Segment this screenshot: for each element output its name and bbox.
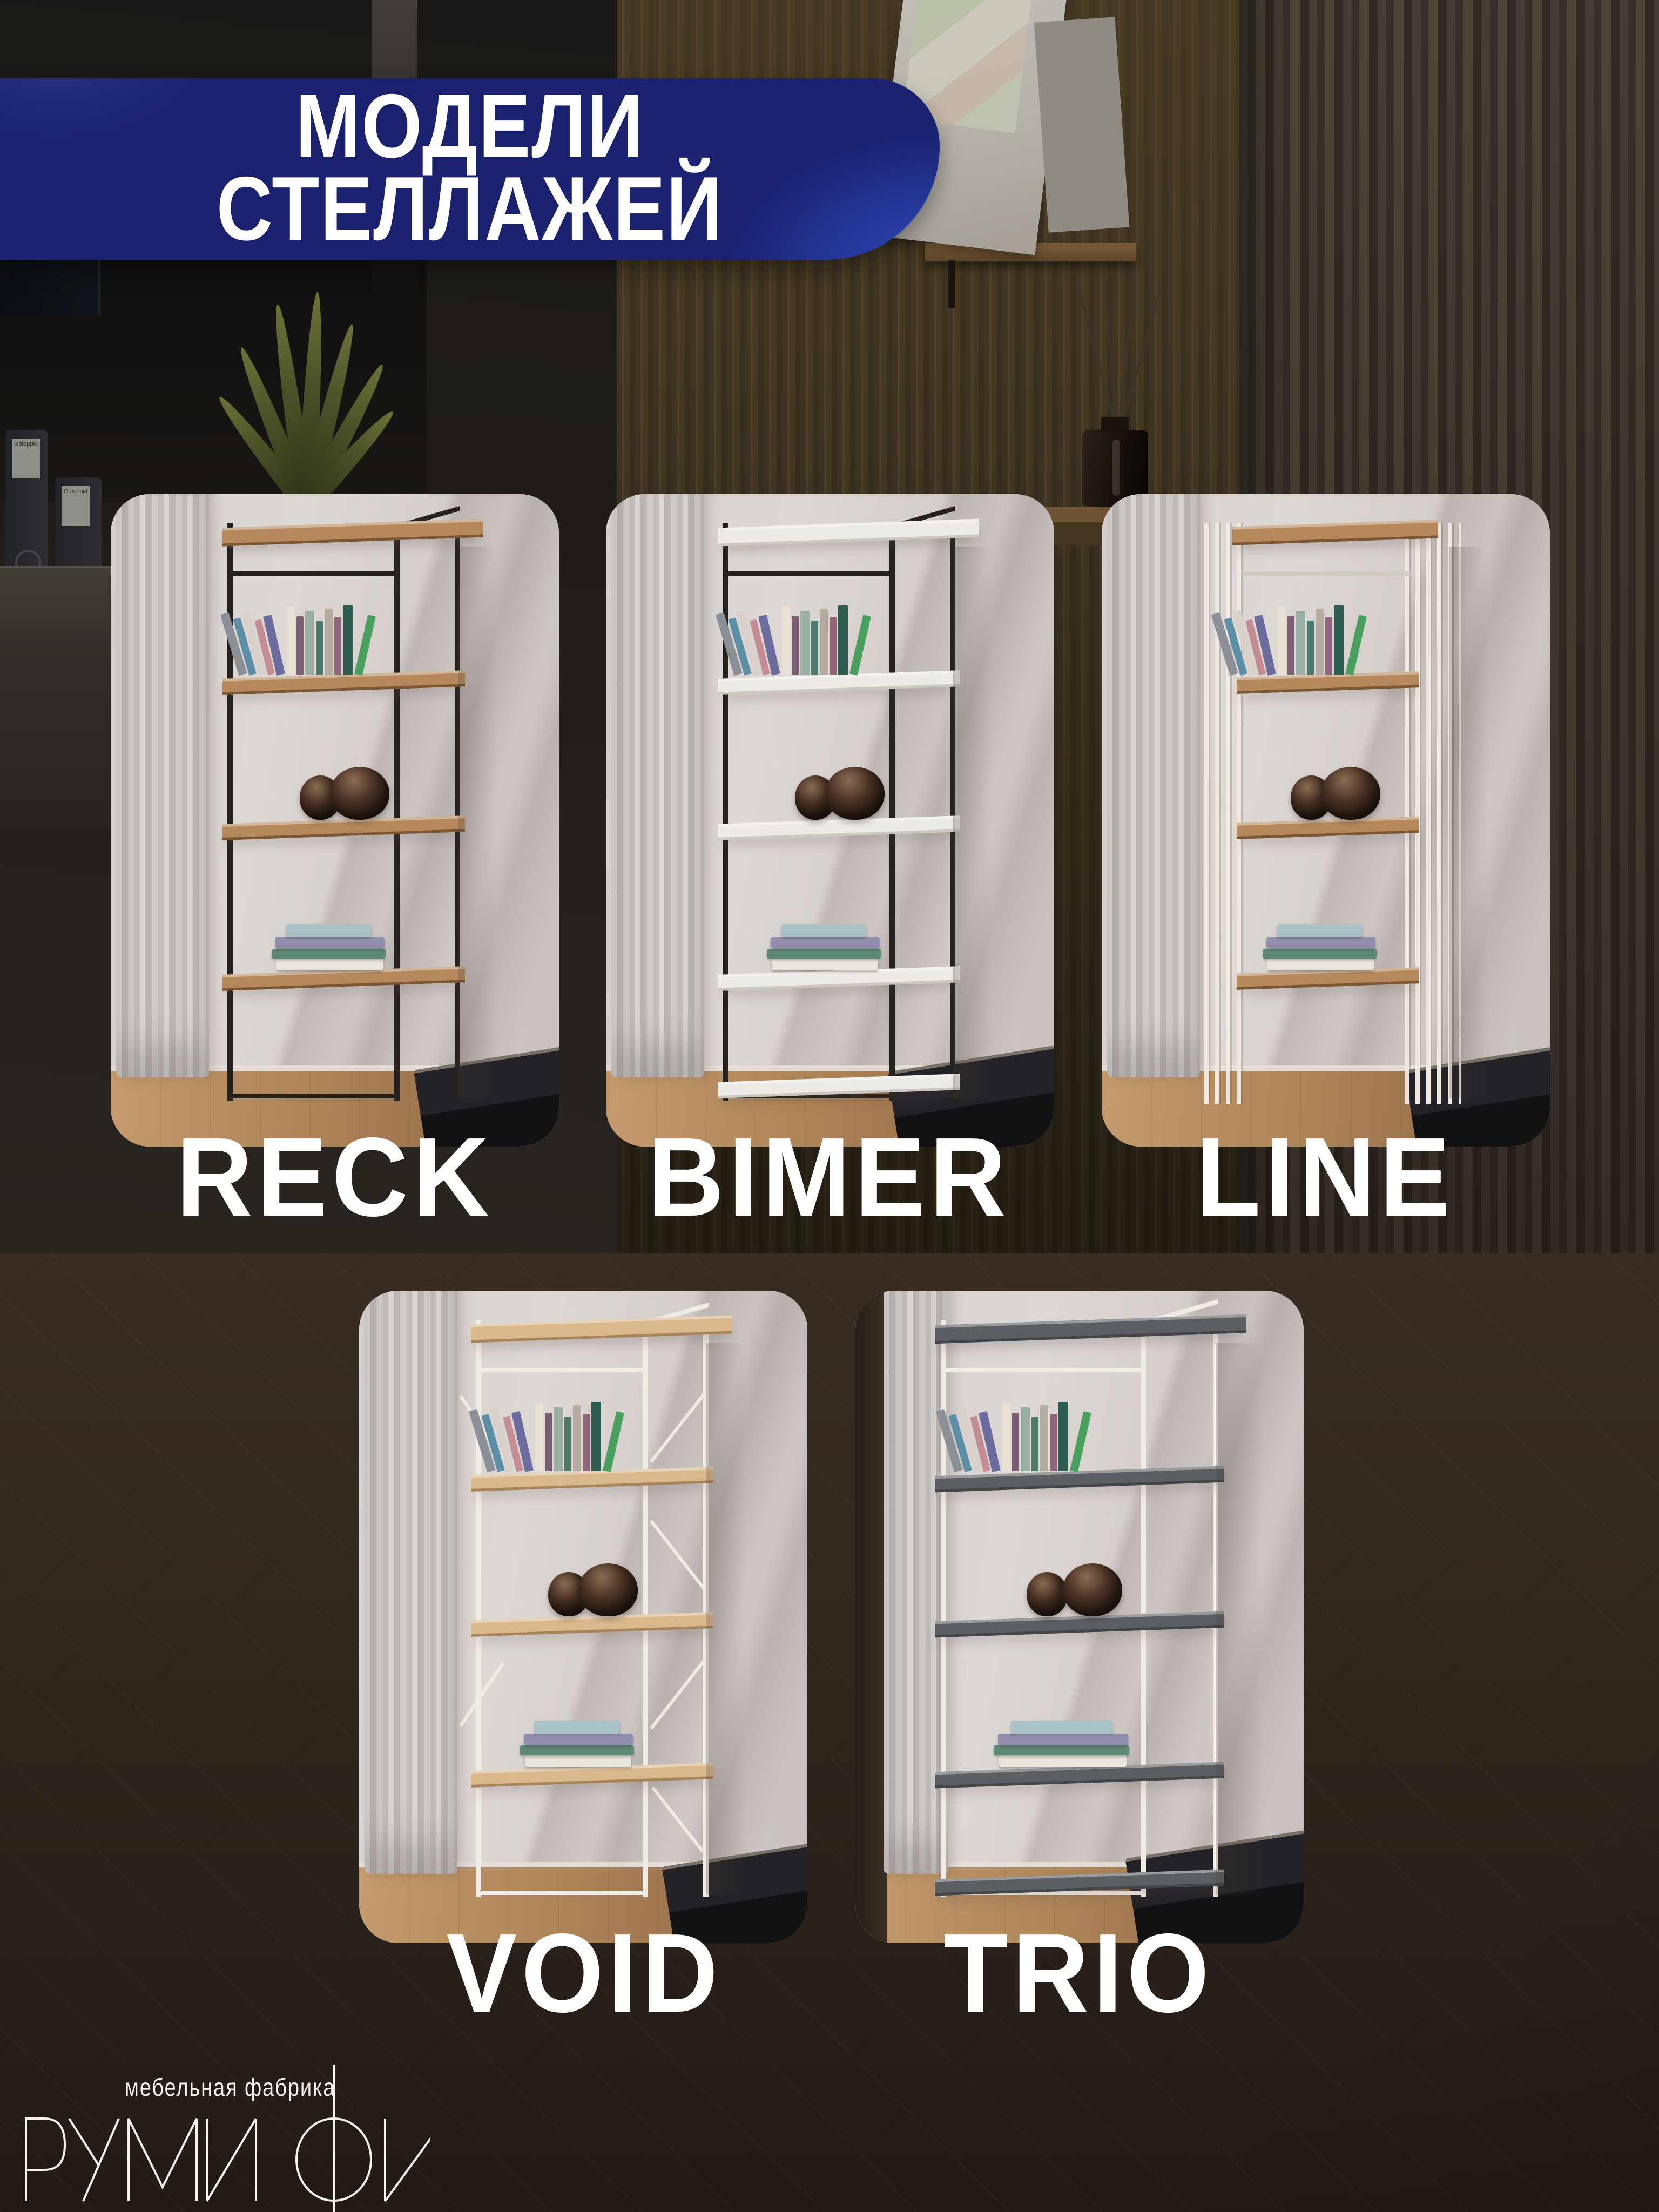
decor-book — [1325, 617, 1332, 675]
product-photo — [359, 1291, 807, 1943]
decor-book-stack — [998, 1734, 1128, 1745]
product-label-line: LINE — [1028, 1121, 1622, 1233]
decor-book — [325, 609, 333, 675]
decor-book — [1278, 606, 1286, 675]
decor-book-stack — [286, 924, 371, 937]
top-rail — [476, 1368, 648, 1372]
decor-book — [591, 1402, 601, 1471]
decor-book-stack — [1011, 1721, 1112, 1734]
decor-book — [1334, 605, 1344, 675]
decor-book — [1040, 1405, 1048, 1471]
brand-logo: мебельная фабрика РУМИФИ — [0, 2062, 497, 2212]
decor-book-stack — [535, 1721, 619, 1734]
decor-book-stack — [524, 1734, 633, 1745]
decor-book-stack — [525, 1755, 631, 1767]
decor-book-stack — [767, 949, 881, 959]
x-brace — [650, 1520, 706, 1590]
banner-title-line2: СТЕЛЛАЖЕЙ — [66, 167, 874, 250]
decor-vase-big — [1063, 1563, 1122, 1616]
decor-book-stack — [999, 1755, 1126, 1767]
decor-book — [838, 605, 848, 675]
brand-wordmark — [19, 2062, 430, 2212]
decor-vase-big — [330, 767, 389, 820]
shelf-board — [1237, 817, 1419, 839]
decor-vase-big — [578, 1563, 638, 1616]
shelving-unit — [1218, 523, 1452, 1104]
decor-book — [305, 611, 314, 675]
decor-book — [792, 616, 799, 675]
decor-book-stack — [275, 937, 385, 949]
decor-book-stack — [276, 959, 383, 970]
decor-book — [1012, 1413, 1019, 1471]
decor-books-row — [487, 1402, 659, 1471]
decor-book — [1002, 1403, 1010, 1471]
shelving-unit — [941, 1320, 1219, 1900]
promo-image: Galoppid Galoppid МОДЕЛИ СТЕЛЛАЖЕЙ — [0, 0, 1659, 2212]
decor-book-stack — [269, 923, 390, 970]
decor-book — [1021, 1407, 1030, 1471]
decor-book — [1287, 616, 1294, 675]
card-curtain — [365, 1291, 457, 1874]
shelving-unit — [227, 523, 461, 1104]
top-board — [718, 519, 979, 547]
product-label-trio: TRIO — [781, 1917, 1375, 2029]
letter-i — [207, 2119, 256, 2201]
decor-book-stack — [1263, 949, 1377, 959]
decor-book-stack — [990, 1719, 1135, 1767]
top-rail — [723, 571, 895, 576]
decor-book — [287, 606, 295, 675]
decor-book — [811, 621, 818, 675]
shelving-unit — [476, 1320, 709, 1900]
letter-u — [69, 2119, 119, 2201]
decor-books-row — [239, 605, 411, 675]
decor-book — [1031, 1417, 1038, 1471]
product-card-bimer — [606, 494, 1054, 1147]
decor-book — [1050, 1414, 1057, 1471]
product-card-line — [1102, 494, 1550, 1147]
decor-book-stack — [1277, 924, 1362, 937]
decor-book — [1307, 621, 1314, 675]
card-curtain — [116, 494, 209, 1077]
decor-vase-small — [1027, 1572, 1068, 1616]
decor-book — [1346, 615, 1367, 676]
decor-books-row — [734, 605, 906, 675]
decor-book-stack — [771, 937, 880, 949]
letter-r — [26, 2119, 65, 2201]
shelf-board — [1237, 671, 1419, 694]
decor-book — [782, 606, 790, 675]
bottom-rail — [476, 1891, 648, 1895]
letter-i — [385, 2119, 430, 2201]
shelf-board — [1237, 967, 1419, 990]
decor-book — [1316, 609, 1324, 675]
slat-side-right — [1405, 523, 1461, 1104]
decor-book — [829, 617, 837, 675]
decor-book — [535, 1403, 543, 1471]
decor-book — [583, 1414, 590, 1471]
card-curtain — [1107, 494, 1200, 1077]
decor-book — [800, 611, 810, 675]
product-card-trio — [855, 1291, 1304, 1943]
decor-vase-big — [1321, 767, 1380, 820]
decor-books-row — [1230, 605, 1402, 675]
decor-book-stack — [764, 923, 885, 970]
decor-book-stack — [1266, 937, 1375, 949]
decor-book-stack — [272, 949, 386, 959]
decor-book-stack — [781, 924, 866, 937]
decor-book — [334, 617, 341, 675]
shelving-unit — [723, 523, 956, 1104]
product-card-reck — [111, 494, 559, 1147]
decor-book — [850, 615, 872, 676]
banner-title-line1: МОДЕЛИ — [66, 78, 874, 167]
top-rail — [227, 571, 400, 576]
decor-book — [820, 609, 828, 675]
top-board — [471, 1316, 732, 1343]
top-board — [222, 519, 483, 547]
decor-books-row — [954, 1402, 1160, 1471]
shelf-board — [471, 1612, 713, 1637]
card-curtain — [611, 494, 704, 1077]
decor-book-stack — [772, 959, 878, 970]
x-brace — [650, 1659, 706, 1730]
upright-left — [227, 523, 233, 1101]
upright-left — [941, 1320, 946, 1897]
decor-book — [1070, 1411, 1092, 1472]
x-brace — [651, 1786, 704, 1852]
decor-book — [545, 1413, 552, 1471]
decor-book — [564, 1417, 571, 1471]
upright-left — [723, 523, 728, 1101]
shelf-board — [718, 815, 960, 840]
shelf-board — [935, 1611, 1224, 1637]
decor-book-stack — [994, 1745, 1130, 1755]
top-rail — [941, 1368, 1147, 1372]
decor-book-stack — [520, 1745, 634, 1755]
decor-book — [1058, 1402, 1068, 1471]
decor-book — [1296, 611, 1305, 675]
decor-book — [554, 1407, 563, 1471]
decor-book — [573, 1405, 581, 1471]
decor-book — [603, 1411, 625, 1472]
product-photo — [606, 494, 1054, 1147]
metal-rail — [1242, 571, 1410, 576]
dark-edge — [855, 1291, 887, 1943]
decor-book-stack — [1260, 923, 1381, 970]
shelf-board — [222, 815, 465, 840]
product-photo — [855, 1291, 1304, 1943]
letter-m — [129, 2119, 197, 2201]
product-card-void — [359, 1291, 807, 1943]
decor-book-stack — [1267, 959, 1374, 970]
decor-book — [316, 621, 323, 675]
decor-book — [355, 615, 376, 676]
decor-vase-big — [825, 767, 885, 820]
decor-book — [343, 605, 353, 675]
bottom-rail — [227, 1094, 400, 1098]
product-photo — [1102, 494, 1550, 1147]
title-banner: МОДЕЛИ СТЕЛЛАЖЕЙ — [0, 78, 940, 260]
decor-book-stack — [517, 1719, 638, 1767]
brand-name-text: РУМИФИ — [0, 2062, 1, 2062]
upright-left — [476, 1320, 481, 1897]
product-photo — [111, 494, 559, 1147]
decor-book — [296, 616, 304, 675]
